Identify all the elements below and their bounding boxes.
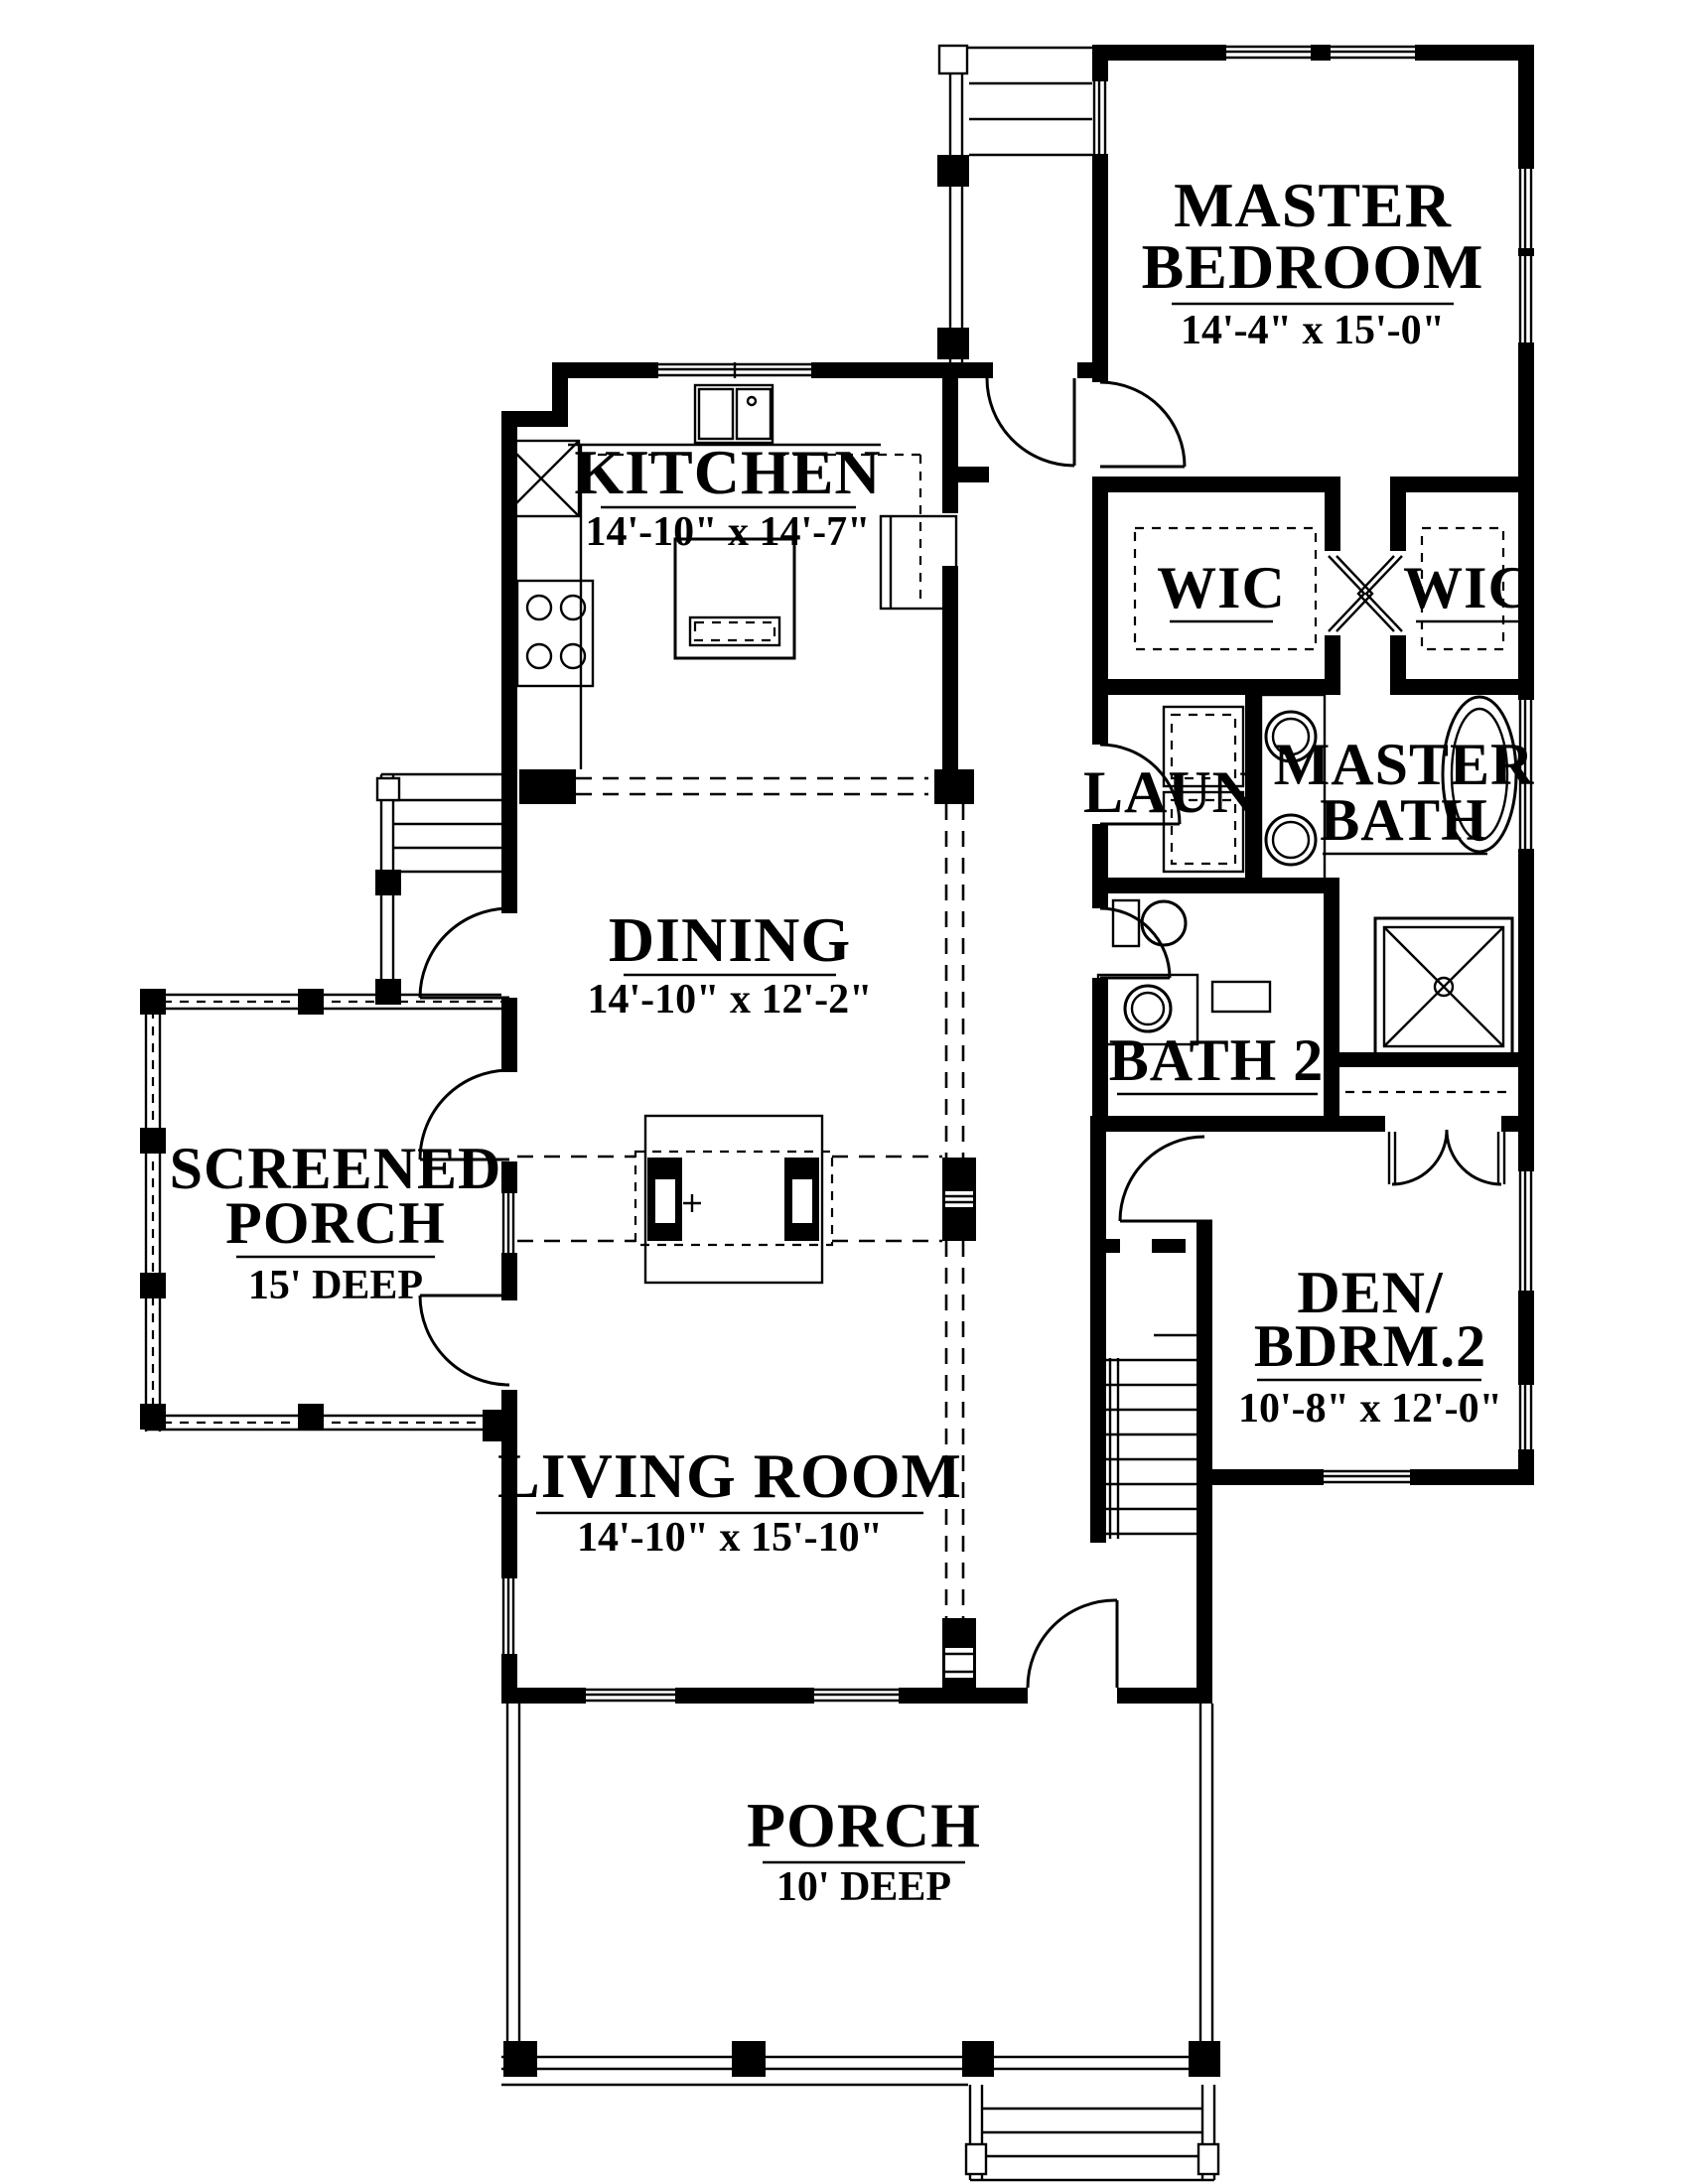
dining-label: DINING xyxy=(609,904,851,975)
screened-porch-label-2: PORCH xyxy=(225,1190,446,1256)
column-beam-feature xyxy=(635,1116,832,1283)
wic-right-label: WIC xyxy=(1403,555,1532,620)
kitchen-sink xyxy=(695,385,773,443)
den-dims: 10'-8" x 12'-0" xyxy=(1238,1386,1502,1432)
porch-label: PORCH xyxy=(747,1790,981,1860)
toilet xyxy=(1113,900,1186,946)
shower xyxy=(1375,918,1512,1055)
wic-left-label: WIC xyxy=(1157,555,1286,620)
porch-depth: 10' DEEP xyxy=(776,1864,951,1910)
kitchen-label: KITCHEN xyxy=(574,437,881,507)
master-bedroom-dims: 14'-4" x 15'-0" xyxy=(1181,308,1445,353)
kitchen-dims: 14'-10" x 14'-7" xyxy=(586,509,871,555)
door-den xyxy=(1120,1137,1212,1221)
floor-plan-canvas: MASTER BEDROOM 14'-4" x 15'-0" KITCHEN 1… xyxy=(0,0,1688,2184)
door-front-entry xyxy=(1028,1600,1117,1688)
screened-porch-depth: 15' DEEP xyxy=(248,1263,423,1308)
master-bedroom-label-2: BEDROOM xyxy=(1142,231,1484,302)
rear-deck-railing xyxy=(937,46,1092,362)
master-bath-label-2: BATH xyxy=(1320,787,1488,853)
master-bedroom-label-1: MASTER xyxy=(1174,170,1452,240)
door-rear-stoop xyxy=(420,908,509,998)
bath2-label: BATH 2 xyxy=(1109,1027,1325,1093)
closet-double-doors-den xyxy=(1389,1130,1504,1184)
kitchen-island xyxy=(675,539,794,658)
living-room-dims: 14'-10" x 15'-10" xyxy=(577,1515,883,1561)
rear-stoop xyxy=(375,774,501,1005)
door-screened-porch-2 xyxy=(420,1296,509,1385)
living-room-label: LIVING ROOM xyxy=(497,1440,962,1511)
den-label-2: BDRM.2 xyxy=(1254,1313,1486,1379)
bath2-fixtures xyxy=(1098,900,1270,1044)
stairs xyxy=(1106,1335,1196,1539)
front-steps xyxy=(966,2085,1218,2180)
floor-plan-drawing: MASTER BEDROOM 14'-4" x 15'-0" KITCHEN 1… xyxy=(0,0,1688,2184)
laundry-label: LAUN xyxy=(1083,759,1256,825)
door-master-bedroom xyxy=(1100,382,1185,467)
dining-dims: 14'-10" x 12'-2" xyxy=(588,977,873,1023)
wic-pocket-doors xyxy=(1329,556,1402,631)
door-back-entry xyxy=(987,378,1074,466)
